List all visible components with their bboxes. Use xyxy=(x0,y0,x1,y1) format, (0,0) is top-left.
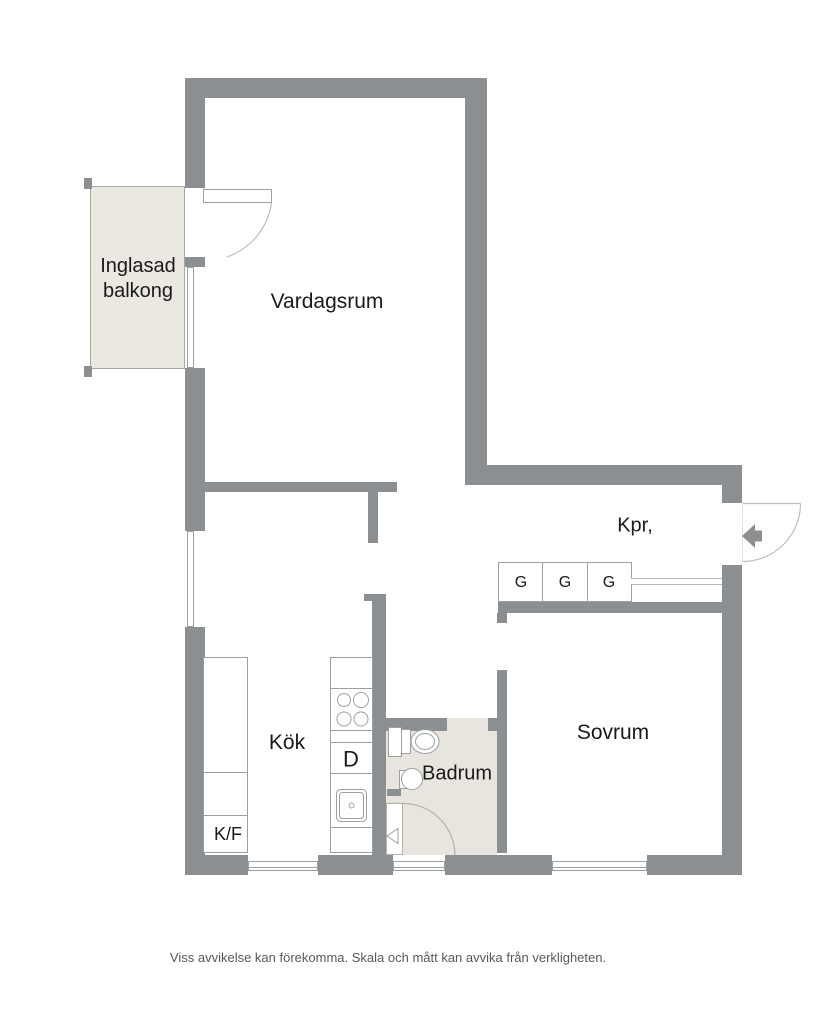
wardrobe-2-label: G xyxy=(559,573,571,593)
kitchen-counter-line-1 xyxy=(331,688,372,689)
livingroom-label: Vardagsrum xyxy=(271,289,384,315)
window-left-balcony xyxy=(187,267,194,368)
bathroom-sink-shelf xyxy=(387,789,401,796)
closet-shelf xyxy=(631,578,722,585)
window-bathroom xyxy=(393,861,445,871)
wall-hall-top xyxy=(487,465,742,485)
entrance-arrow-icon xyxy=(742,524,762,548)
kitchen-label: Kök xyxy=(269,730,305,756)
wardrobe-1-label: G xyxy=(515,573,527,593)
closet-label: Kpr, xyxy=(617,514,653,539)
wall-left-stub xyxy=(185,257,205,267)
fridge-freezer-label: K/F xyxy=(214,823,242,846)
bathroom-area xyxy=(386,718,497,855)
kitchen-counter-line-5 xyxy=(331,827,372,828)
wall-left-middle xyxy=(185,368,205,531)
balcony-label: Inglasad balkong xyxy=(100,254,176,304)
disclaimer-text: Viss avvikelse kan förekomma. Skala och … xyxy=(170,950,606,966)
bedroom-label: Sovrum xyxy=(577,720,649,746)
wall-left-upper xyxy=(185,78,205,188)
window-bedroom xyxy=(552,861,647,871)
wall-top xyxy=(185,78,487,98)
entrance-door-arc xyxy=(743,504,801,562)
wall-left-lower xyxy=(185,627,205,875)
balcony-corner-bottom xyxy=(84,366,92,377)
kitchen-counter-line-3 xyxy=(331,742,372,743)
wall-right-upper xyxy=(722,485,742,503)
bathroom-label: Badrum xyxy=(422,762,492,787)
window-bathroom-mullion xyxy=(394,867,444,868)
balcony-corner-top xyxy=(84,178,92,189)
wall-livingroom-right xyxy=(465,78,487,485)
wall-bedroom-left xyxy=(497,670,507,853)
window-kitchen-mullion xyxy=(249,867,317,868)
balcony-label-line1: Inglasad xyxy=(100,254,176,279)
wall-bathroom-top xyxy=(386,718,447,731)
wall-hall-bottom xyxy=(498,602,742,613)
balcony-door-leaf xyxy=(204,190,272,203)
wardrobe-3-label: G xyxy=(603,573,615,593)
balcony-label-line2: balkong xyxy=(100,279,176,304)
window-left-kitchen xyxy=(187,531,194,627)
wall-hall-kitchen-stub xyxy=(368,492,378,543)
kitchen-counter-line-4 xyxy=(331,773,372,774)
balcony-door-arc xyxy=(227,203,272,258)
fridge-freezer-divider-2 xyxy=(204,815,247,816)
dishwasher-label: D xyxy=(343,745,359,773)
wall-kitchen-bathroom-notch xyxy=(364,594,372,601)
wall-bedroom-left-notch xyxy=(497,613,507,623)
wall-livingroom-bottom xyxy=(203,482,397,492)
window-kitchen xyxy=(248,861,318,871)
wall-kitchen-bathroom xyxy=(372,594,386,855)
window-bedroom-mullion xyxy=(553,867,646,868)
fridge-freezer-divider-1 xyxy=(204,772,247,773)
floorplan-canvas: Inglasad balkong Vardagsrum Kpr, G G G S… xyxy=(0,0,825,1017)
kitchen-counter-line-2 xyxy=(331,730,372,731)
